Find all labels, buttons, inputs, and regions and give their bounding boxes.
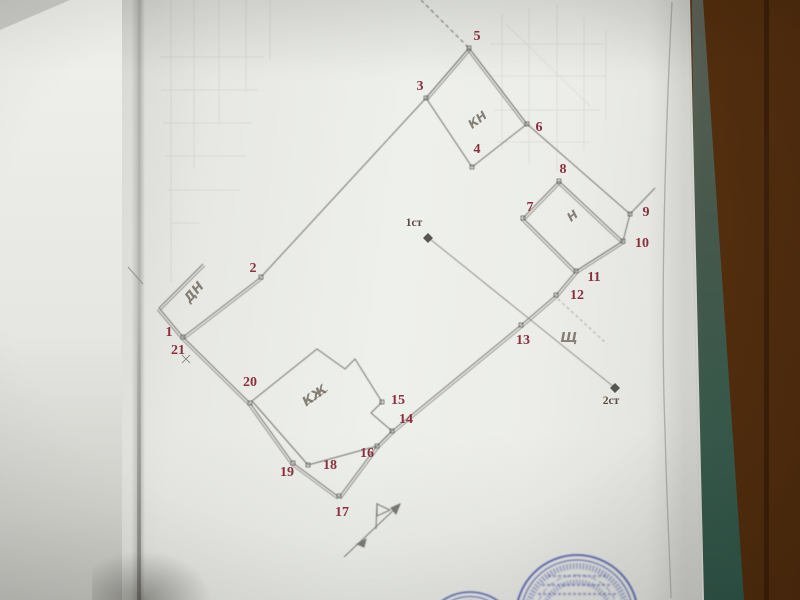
point-label-3: 3 [417,79,424,94]
point-label-21: 21 [171,343,185,358]
point-label-16: 16 [360,446,374,461]
point-label-19: 19 [280,465,294,480]
station-label-2st: 2ст [603,395,620,407]
point-label-10: 10 [635,236,649,251]
point-label-2: 2 [250,261,257,276]
photo-of-survey-plan-page: 1 2 3 4 5 6 7 8 9 10 11 12 13 14 15 16 1… [0,0,800,600]
bleed-through-grid [160,0,606,282]
point-label-12: 12 [570,288,584,303]
plan-linework [157,0,655,557]
point-label-13: 13 [516,333,530,348]
page-edge-lines [128,2,701,598]
station-line [430,239,614,387]
pencil-mark [128,267,143,284]
point-label-6: 6 [536,120,543,135]
station-label-1st: 1ст [406,217,423,229]
point-label-11: 11 [587,270,600,285]
point-label-20: 20 [243,375,257,390]
north-arrow [344,503,400,557]
point-label-9: 9 [643,205,650,220]
point-label-4: 4 [474,142,481,157]
stamps [422,555,638,600]
label-n: Н [564,207,581,224]
label-dn: ДН [181,279,208,307]
area-labels: ДН КН Н КЖ Щ [181,108,581,410]
point-label-18: 18 [323,458,337,473]
label-kn: КН [465,108,489,131]
point-label-15: 15 [391,393,405,408]
label-kzh: КЖ [300,382,331,410]
round-stamp-left [422,592,518,600]
station-marker-1 [423,233,433,243]
round-stamp-right [516,555,638,600]
point-label-1: 1 [166,325,173,340]
point-label-7: 7 [527,200,534,215]
plan-drawing: 1 2 3 4 5 6 7 8 9 10 11 12 13 14 15 16 1… [0,0,800,600]
point-label-8: 8 [560,162,567,177]
dashed-boundary [421,0,469,48]
point-label-17: 17 [335,505,349,520]
label-shch: Щ [560,331,577,346]
point-label-14: 14 [399,412,413,427]
point-label-5: 5 [474,29,481,44]
